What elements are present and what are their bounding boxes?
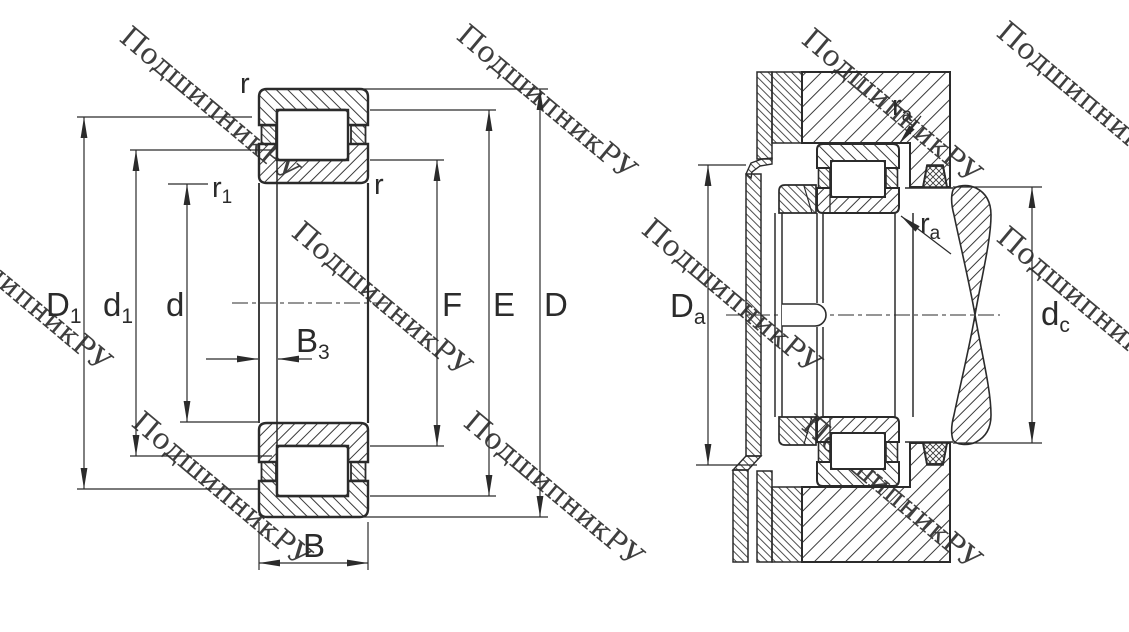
cage-left-bottom — [819, 442, 831, 462]
shaft-shoulder-fillet-top — [952, 186, 991, 315]
bearing-drawing-page: ПодшипникРУ ПодшипникРУ ПодшипникРУ Подш… — [0, 0, 1129, 632]
label-D1: D1 — [46, 286, 82, 328]
cage-left-bottom — [262, 462, 277, 481]
cover-flange-top — [757, 72, 772, 159]
label-ra-bottom: ra — [920, 208, 941, 244]
watermark-text: ПодшипникРУ — [458, 404, 651, 574]
watermark-text: ПодшипникРУ — [991, 14, 1129, 184]
shaft-end-tongue — [782, 304, 826, 326]
roller-bottom — [831, 433, 885, 469]
housing-spigot-top — [772, 72, 802, 143]
label-D: D — [544, 286, 568, 323]
cover-bend-bottom — [733, 456, 761, 470]
cage-left-top — [819, 168, 831, 188]
cage-left-top — [262, 126, 277, 145]
cage-right-bottom — [351, 462, 366, 481]
cover-flange-bottom — [757, 471, 772, 562]
watermark-text: ПодшипникРУ — [991, 219, 1129, 389]
label-F: F — [442, 286, 462, 323]
label-r-right: r — [374, 169, 384, 201]
bearing-technical-drawing: ПодшипникРУ ПодшипникРУ ПодшипникРУ Подш… — [0, 0, 1129, 632]
felt-seal-bottom — [923, 443, 947, 465]
cage-right-top — [886, 168, 898, 188]
felt-seal-top — [923, 165, 947, 187]
label-r1: r1 — [212, 172, 232, 208]
roller-bottom — [277, 446, 348, 496]
label-Da: Da — [670, 287, 706, 329]
label-d1: d1 — [103, 286, 133, 328]
cage-right-top — [351, 126, 366, 145]
roller-top — [277, 110, 348, 160]
cover-wall — [746, 174, 761, 456]
housing-spigot-bottom — [772, 487, 802, 562]
cage-right-bottom — [886, 442, 898, 462]
watermark-text: ПодшипникРУ — [451, 17, 644, 187]
label-E: E — [493, 286, 515, 323]
label-B3: B3 — [296, 322, 330, 364]
watermark-text: ПодшипникРУ — [636, 211, 829, 381]
cover-foot — [733, 470, 748, 562]
roller-top — [831, 161, 885, 197]
shaft-shoulder-fillet-bottom — [952, 315, 991, 444]
label-B: B — [303, 527, 325, 564]
label-r-top: r — [240, 68, 250, 100]
label-d: d — [166, 286, 184, 323]
right-view-mounting-section — [696, 72, 1042, 562]
